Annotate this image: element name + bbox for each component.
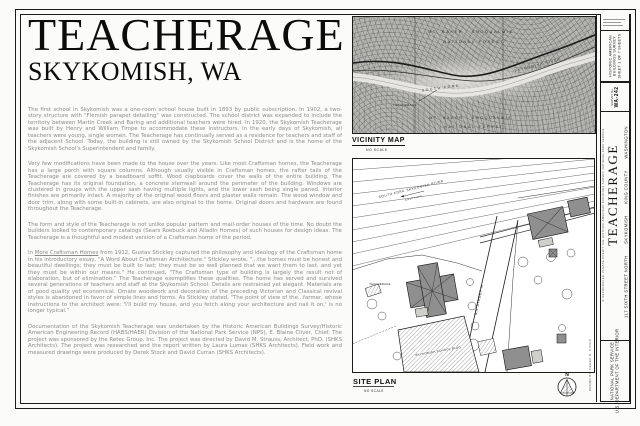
structure-name: TEACHERAGE: [605, 144, 621, 246]
paragraph-form-style: The form and style of the Teacherage is …: [28, 222, 342, 241]
forest-label-top-1: MT. BAKER - SNOQUALMIE: [428, 30, 514, 34]
forest-label-bottom-2: NATIONAL FOREST: [444, 125, 503, 129]
stickley-pre: In: [28, 250, 35, 256]
structure-address-line: 117 SIXTH STREET NORTH SKYKOMISH KING CO…: [624, 121, 629, 323]
structure-county: KING COUNTY: [624, 170, 629, 203]
site-callout-label: TEACHERAGE: [393, 103, 417, 107]
habs-sheet: { "title": { "name": "TEACHERAGE", "loca…: [0, 0, 640, 426]
forest-label-bottom-1: MT. BAKER - SNOQUALMIE: [429, 116, 512, 120]
teacherage-label: TEACHERAGE: [369, 282, 391, 286]
vicinity-map: MT. BAKER - SNOQUALMIE NATIONAL FOREST S…: [352, 16, 596, 134]
survey-no-value: WA-242: [614, 86, 620, 107]
vicinity-map-label: VICINITY MAP: [352, 137, 405, 146]
sheet-count: SHEET 1 OF 7 SHEETS: [617, 34, 621, 79]
site-plan-label: SITE PLAN: [353, 377, 397, 386]
survey-number-text: SURVEY No. WA-242: [610, 86, 620, 107]
stickley-book-title: More Craftsman Homes: [35, 250, 99, 256]
paragraph-stickley: In More Craftsman Homes from 1912, Gusta…: [28, 250, 342, 315]
agency-text: NATIONAL PARK SERVICE U.S. DEPARTMENT OF…: [610, 329, 621, 414]
site-plan-scale: NO SCALE: [364, 389, 384, 393]
structure-address: 117 SIXTH STREET NORTH: [624, 255, 629, 318]
page-subtitle: SKYKOMISH, WA: [28, 58, 343, 86]
agency-line-2: U.S. DEPARTMENT OF THE INTERIOR: [615, 329, 620, 414]
structure-city: SKYKOMISH: [624, 215, 629, 244]
vicinity-map-overlay: MT. BAKER - SNOQUALMIE NATIONAL FOREST S…: [353, 17, 595, 133]
forest-label-top-2: NATIONAL FOREST: [443, 40, 504, 44]
paragraph-history: The first school in Skykomish was a one-…: [28, 107, 342, 152]
vicinity-map-scale: NO SCALE: [366, 148, 388, 152]
document-title-block: TEACHERAGE SKYKOMISH, WA: [28, 12, 343, 86]
stickley-rest: from 1912, Gustav Stickley captured the …: [28, 250, 342, 314]
title-block-separator: [596, 14, 597, 402]
site-plan: SOUTH FORK SKYKOMISH RIVER RIVER FLOW RI…: [352, 158, 595, 400]
north-arrow: N: [558, 372, 576, 396]
north-letter: N: [565, 372, 569, 378]
page-title: TEACHERAGE: [28, 12, 343, 58]
paragraph-modifications: Very few modifications have been made to…: [28, 161, 342, 213]
body-text: The first school in Skykomish was a one-…: [28, 107, 342, 365]
survey-box-text: HISTORIC AMERICAN BUILDINGS SURVEY SHEET…: [608, 34, 621, 79]
drawn-by-note: DRAWN BY: DEREK R. STOCK: [588, 339, 592, 391]
paragraph-credits: Documentation of the Skykomish Teacherag…: [28, 324, 342, 356]
structure-state: WASHINGTON: [624, 126, 629, 159]
